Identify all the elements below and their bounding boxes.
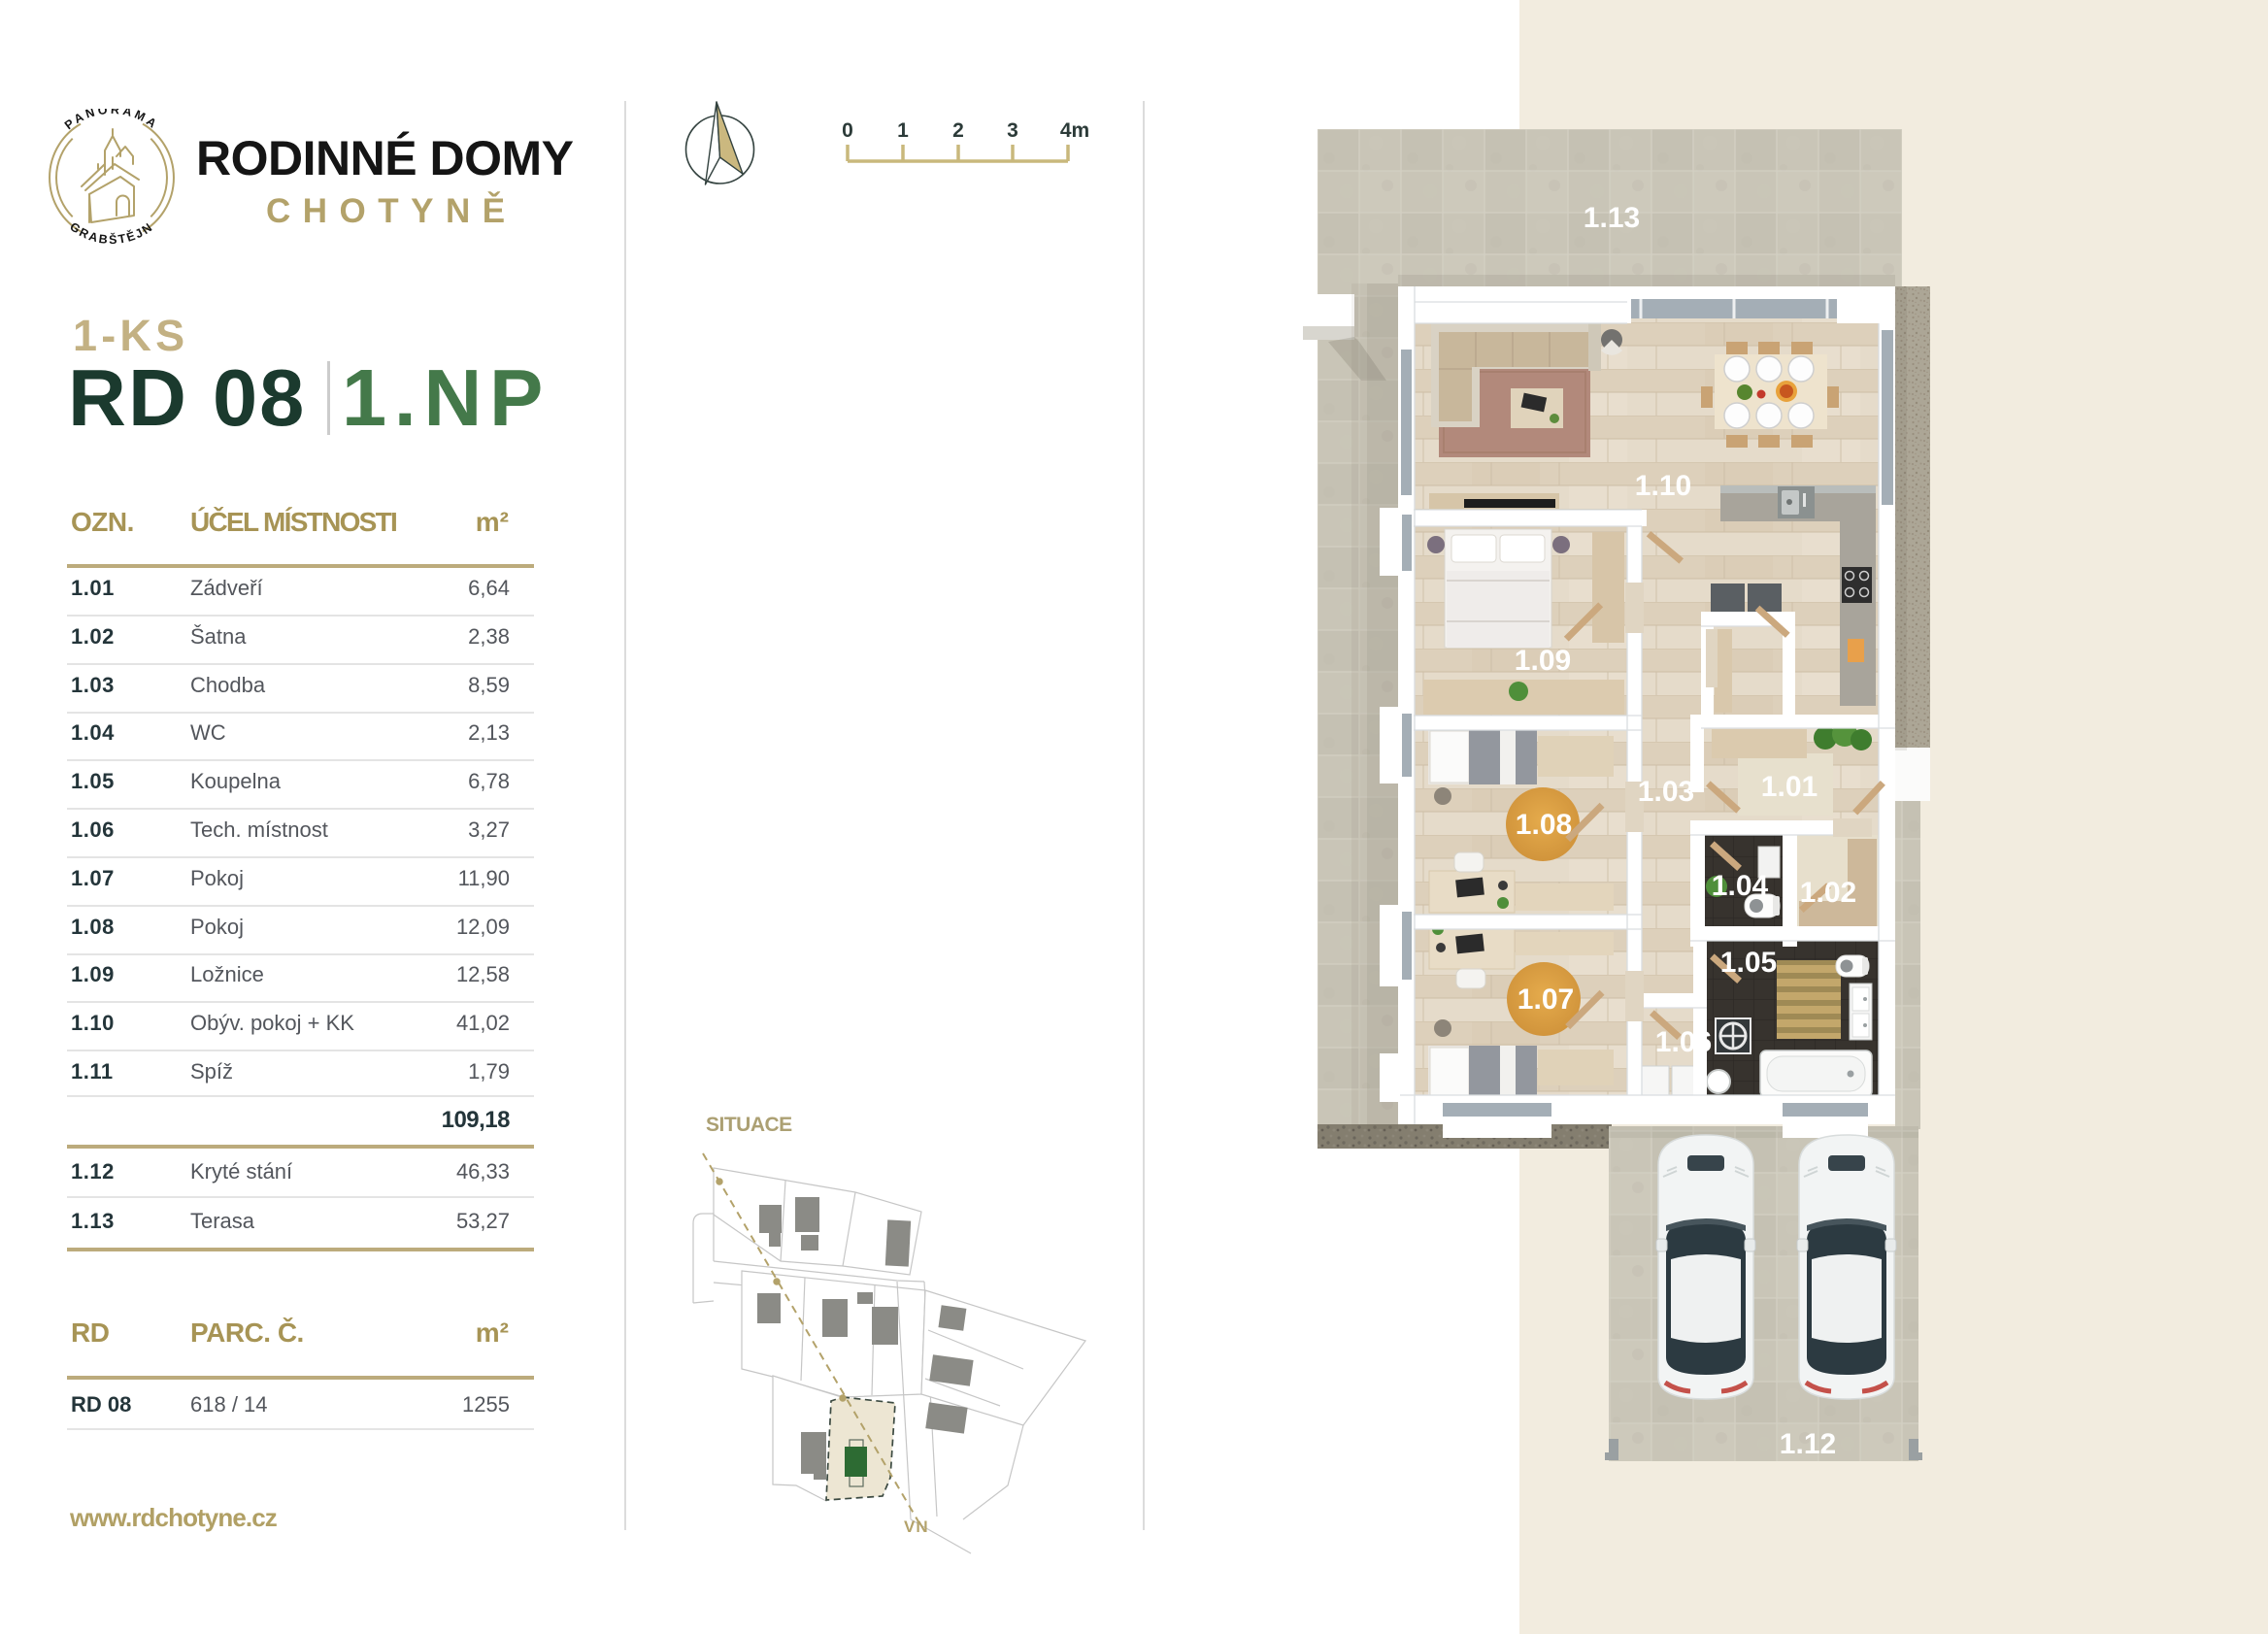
svg-text:PANORAMA: PANORAMA <box>62 109 161 132</box>
svg-text:VN: VN <box>904 1517 929 1536</box>
svg-text:0: 0 <box>842 119 853 142</box>
svg-text:1.07: 1.07 <box>1518 984 1574 1016</box>
svg-text:1.05: 1.05 <box>1720 947 1777 979</box>
svg-text:4m: 4m <box>1060 119 1089 142</box>
svg-text:1.04: 1.04 <box>1712 870 1769 902</box>
svg-text:1.09: 1.09 <box>1515 645 1571 677</box>
svg-text:3: 3 <box>1007 119 1018 142</box>
svg-text:2: 2 <box>952 119 964 142</box>
svg-text:1.08: 1.08 <box>1516 809 1572 841</box>
svg-text:GRABŠTĚJN: GRABŠTĚJN <box>67 219 155 247</box>
svg-text:1: 1 <box>897 119 909 142</box>
svg-text:1.01: 1.01 <box>1761 771 1818 803</box>
svg-text:1.10: 1.10 <box>1635 470 1691 502</box>
svg-text:1.06: 1.06 <box>1655 1026 1712 1058</box>
svg-text:1.12: 1.12 <box>1780 1428 1836 1460</box>
svg-text:1.13: 1.13 <box>1584 202 1640 234</box>
svg-text:1.02: 1.02 <box>1800 877 1856 909</box>
svg-text:1.03: 1.03 <box>1638 776 1694 808</box>
